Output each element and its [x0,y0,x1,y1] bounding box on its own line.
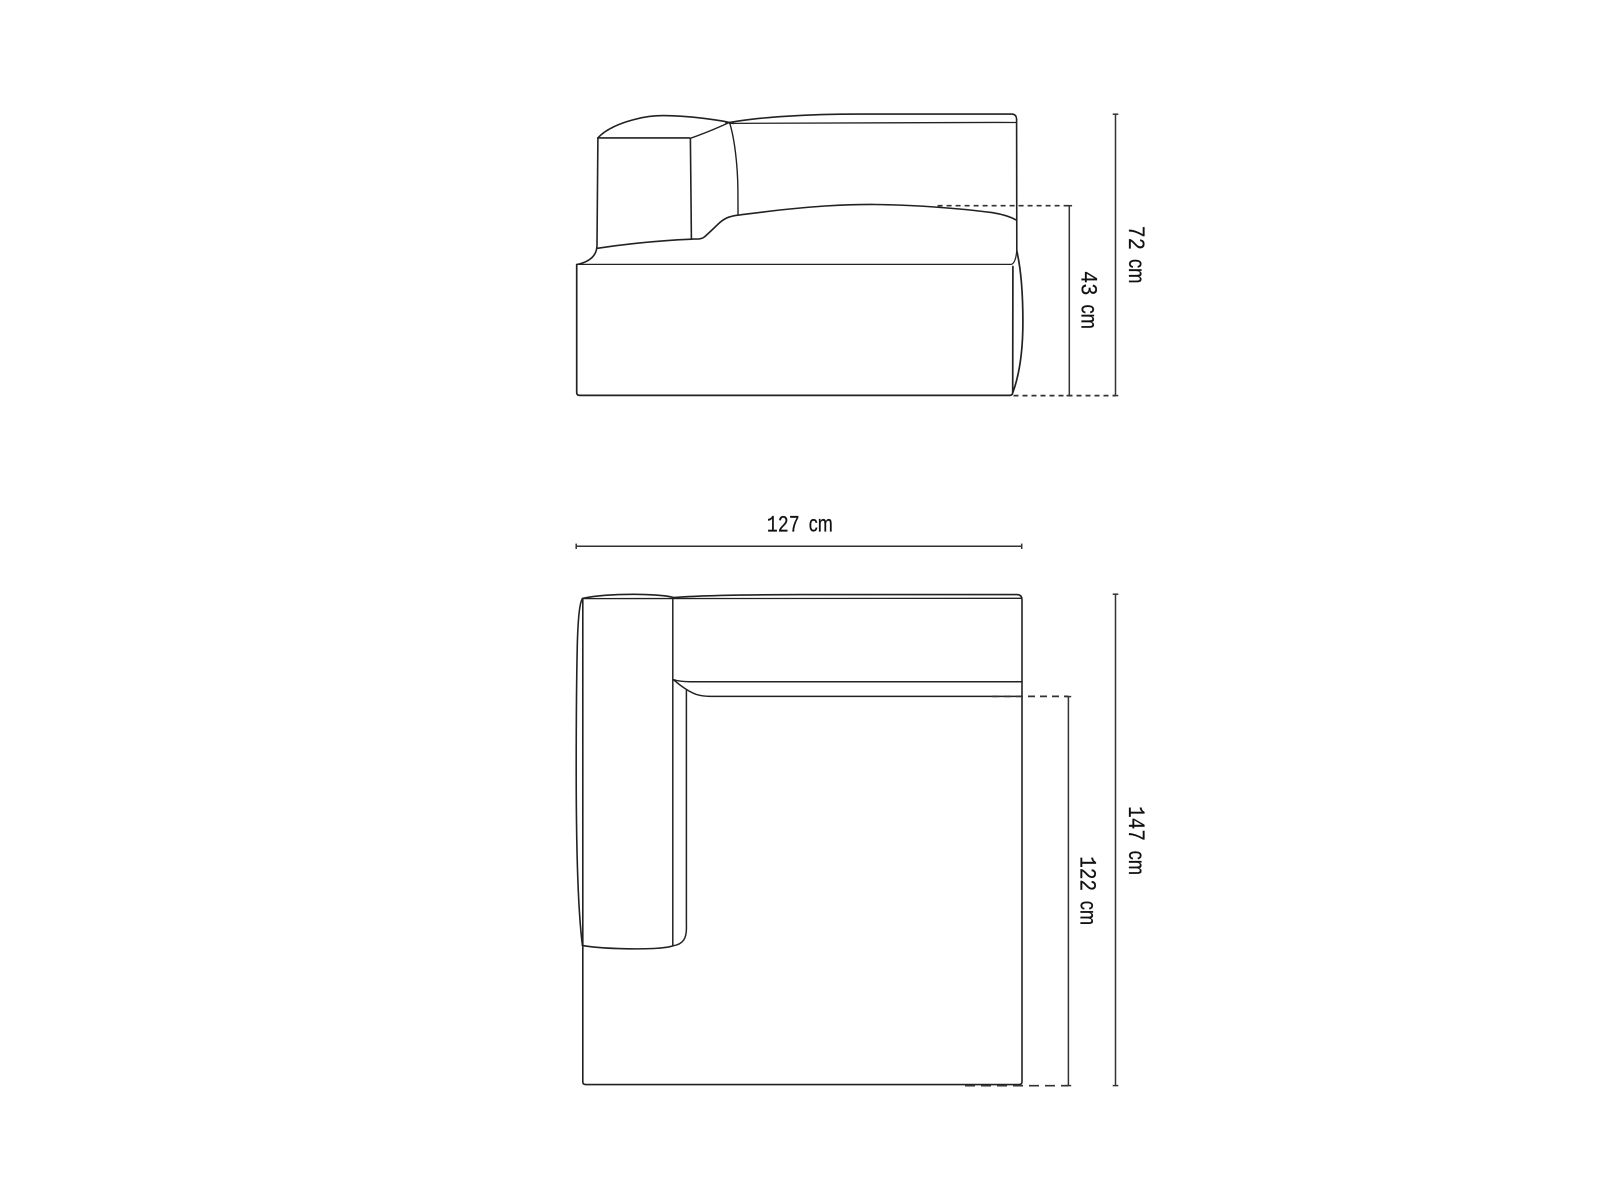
svg-text:147cm: 147cm [1122,806,1150,875]
svg-text:127cm: 127cm [767,511,833,539]
svg-text:122cm: 122cm [1074,856,1102,925]
